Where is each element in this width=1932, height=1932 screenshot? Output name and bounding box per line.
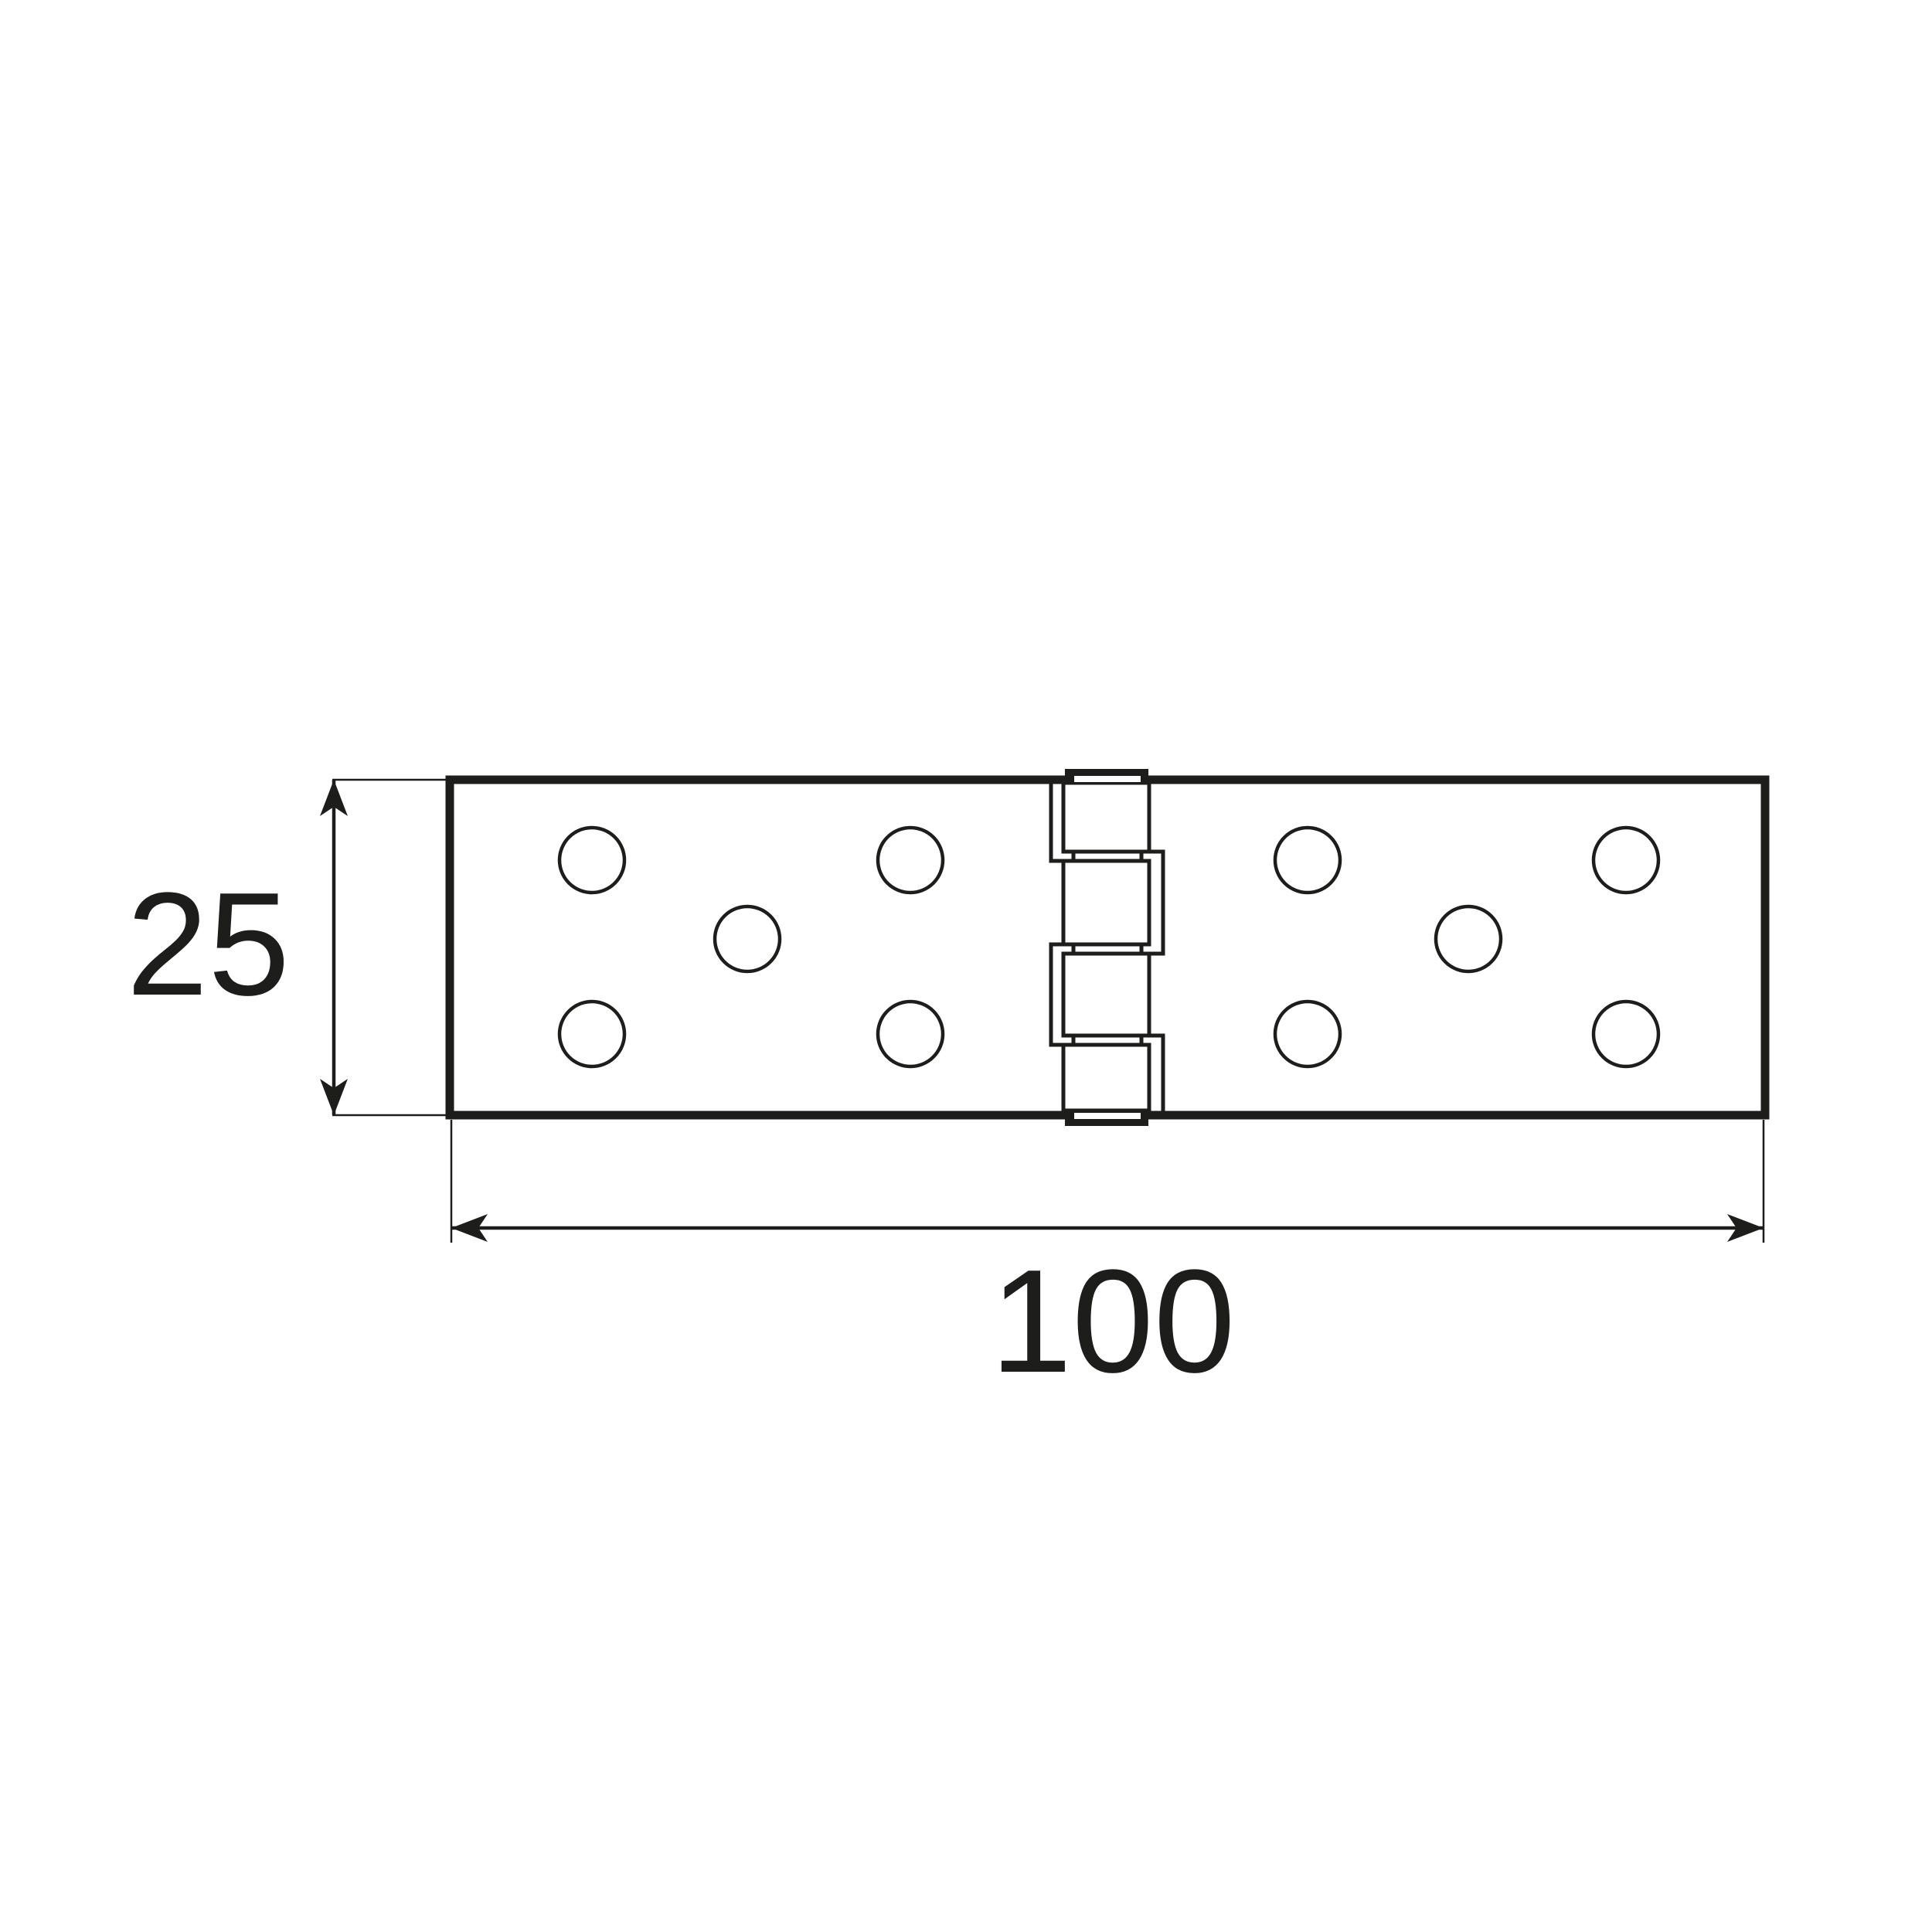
- hinge-technical-drawing: 25 100: [0, 0, 1932, 1932]
- cap-slot: [1074, 1113, 1141, 1119]
- cap-slot: [1074, 776, 1141, 782]
- knuckle-top-cap: [1065, 769, 1148, 782]
- knuckle-bottom-cap: [1065, 1113, 1148, 1126]
- knuckle-segment: [1063, 1045, 1149, 1111]
- width-dimension: 100: [451, 1120, 1764, 1403]
- knuckle-segment: [1063, 861, 1149, 944]
- drawing-canvas: 25 100: [0, 0, 1932, 1932]
- height-dimension: 25: [127, 780, 451, 1115]
- height-dimension-label: 25: [127, 862, 290, 1026]
- width-dimension-label: 100: [990, 1240, 1235, 1403]
- knuckle-segment: [1063, 954, 1149, 1036]
- knuckle-segment: [1063, 783, 1149, 852]
